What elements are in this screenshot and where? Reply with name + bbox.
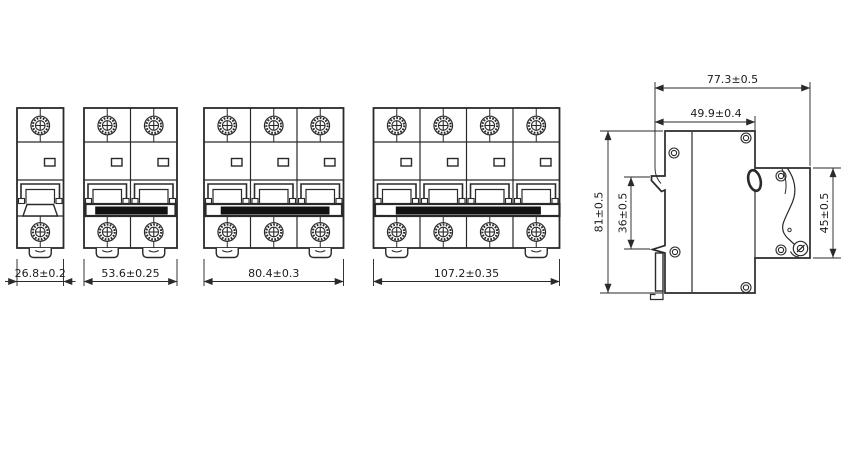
din-clip-tab xyxy=(216,248,238,258)
front-view-2-pole: 53.6±0.25 xyxy=(84,108,177,286)
front-view-3-pole: 80.4±0.3 xyxy=(204,108,344,286)
din-clip-foot xyxy=(651,291,664,300)
din-clip-tab xyxy=(386,248,408,258)
width-dimension-3p: 80.4±0.3 xyxy=(204,259,344,286)
toggle-handle xyxy=(23,205,58,217)
dimension-upper-depth: 49.9±0.4 xyxy=(655,107,755,130)
width-dimension-1p: 26.8±0.2 xyxy=(5,259,76,286)
din-slide-clip xyxy=(656,253,664,291)
din-clip-tab xyxy=(96,248,118,258)
dim-label-width-4p: 107.2±0.35 xyxy=(434,267,499,280)
din-clip-tab xyxy=(525,248,547,258)
din-clip-tab xyxy=(29,248,51,258)
width-dimension-4p: 107.2±0.35 xyxy=(374,259,560,286)
dim-label-upper-depth: 49.9±0.4 xyxy=(690,107,741,120)
din-clip-tab xyxy=(143,248,165,258)
width-dimension-2p: 53.6±0.25 xyxy=(84,259,177,286)
dimension-din-recess-height: 36±0.5 xyxy=(617,177,651,249)
din-clip-tab xyxy=(309,248,331,258)
lever-pin xyxy=(788,228,791,231)
dimension-front-height: 45±0.5 xyxy=(813,168,841,258)
dim-label-overall-depth: 77.3±0.5 xyxy=(707,73,758,86)
mcb-dimension-drawing: 26.8±0.2 53.6±0.25 xyxy=(0,0,858,451)
dim-label-overall-height: 81±0.5 xyxy=(593,192,606,233)
dim-label-width-3p: 80.4±0.3 xyxy=(248,267,299,280)
dim-label-din-recess: 36±0.5 xyxy=(617,193,630,234)
dim-label-width-1p: 26.8±0.2 xyxy=(15,267,66,280)
front-view-4-pole: 107.2±0.35 xyxy=(374,108,560,286)
drawing-sheet: 26.8±0.2 53.6±0.25 xyxy=(0,0,858,451)
front-view-1-pole: 26.8±0.2 xyxy=(5,108,76,286)
dim-label-width-2p: 53.6±0.25 xyxy=(101,267,159,280)
dim-label-front-height: 45±0.5 xyxy=(818,193,831,234)
side-view: 77.3±0.5 49.9±0.4 81±0.5 36±0.5 45± xyxy=(593,73,842,300)
